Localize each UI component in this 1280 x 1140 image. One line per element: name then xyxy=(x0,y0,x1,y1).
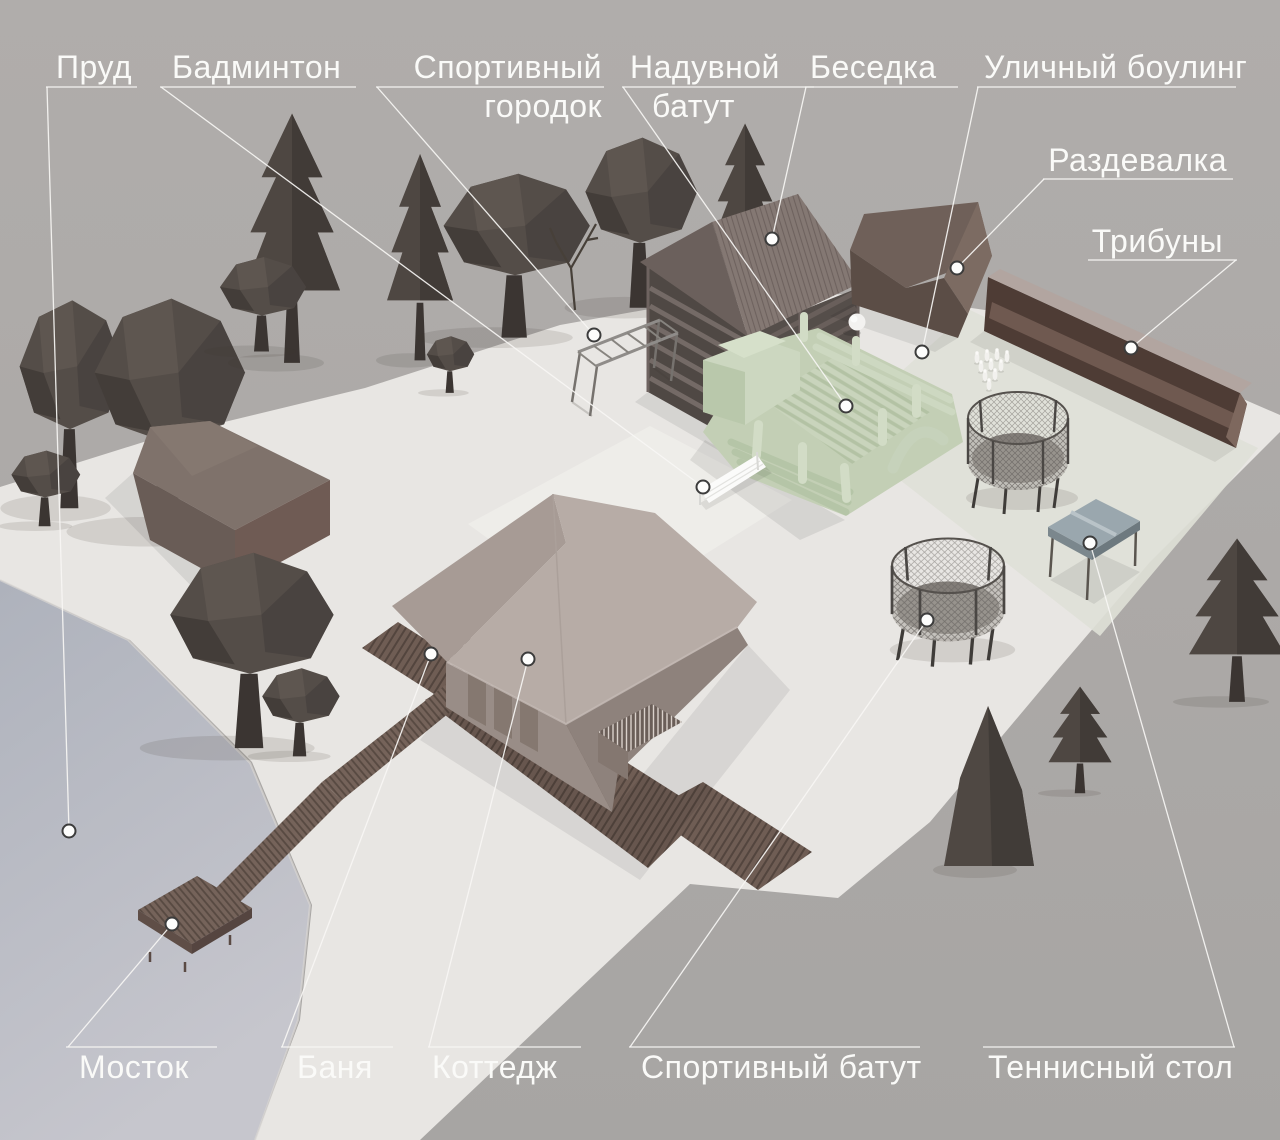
marker-prud[interactable] xyxy=(63,825,76,838)
label-ulichnyy-bouling: Уличный боулинг xyxy=(984,49,1247,85)
site-map: Пруд Бадминтон Спортивный городок Надувн… xyxy=(0,0,1280,1140)
label-tennisnyy-stol: Теннисный стол xyxy=(988,1049,1233,1085)
label-naduvnoy-batut-1: Надувной xyxy=(630,49,780,85)
marker-naduvnoy-batut[interactable] xyxy=(840,400,853,413)
marker-razdevalka[interactable] xyxy=(951,262,964,275)
marker-mostok[interactable] xyxy=(166,918,179,931)
label-tribuny: Трибуны xyxy=(1092,223,1223,259)
label-prud: Пруд xyxy=(56,49,132,85)
marker-tennisnyy-stol[interactable] xyxy=(1084,537,1097,550)
marker-sportivnyy-batut[interactable] xyxy=(921,614,934,627)
label-badminton: Бадминтон xyxy=(172,49,341,85)
scene-canvas: Пруд Бадминтон Спортивный городок Надувн… xyxy=(0,0,1280,1140)
marker-kottedzh[interactable] xyxy=(522,653,535,666)
label-besedka: Беседка xyxy=(810,49,937,85)
marker-ulichnyy-bouling[interactable] xyxy=(916,346,929,359)
label-banya: Баня xyxy=(297,1049,373,1085)
label-sportivnyy-gorodok-1: Спортивный xyxy=(414,49,602,85)
marker-badminton[interactable] xyxy=(697,481,710,494)
label-sportivnyy-gorodok-2: городок xyxy=(484,88,602,124)
marker-banya[interactable] xyxy=(425,648,438,661)
label-razdevalka: Раздевалка xyxy=(1048,142,1227,178)
marker-sportivnyy-gorodok[interactable] xyxy=(588,329,601,342)
marker-tribuny[interactable] xyxy=(1125,342,1138,355)
trampoline-1 xyxy=(966,392,1078,514)
label-naduvnoy-batut-2: батут xyxy=(652,88,735,124)
marker-besedka[interactable] xyxy=(766,233,779,246)
label-mostok: Мосток xyxy=(79,1049,189,1085)
label-kottedzh: Коттедж xyxy=(432,1049,557,1085)
label-sportivnyy-batut: Спортивный батут xyxy=(641,1049,922,1085)
